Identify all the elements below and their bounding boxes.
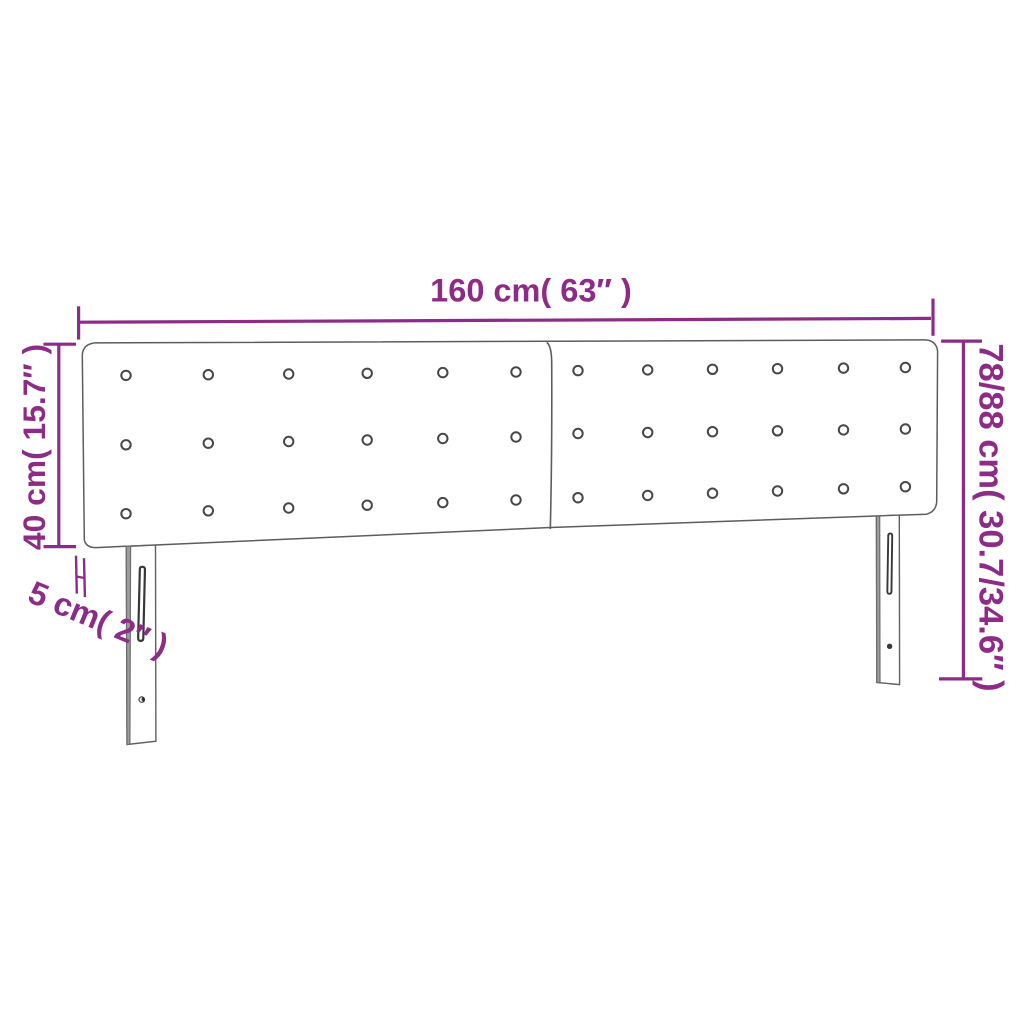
svg-text:40 cm( 15.7″ ): 40 cm( 15.7″ ) <box>16 344 52 550</box>
svg-text:160 cm( 63″ ): 160 cm( 63″ ) <box>430 273 632 309</box>
svg-text:78/88 cm( 30.7/34.6″ ): 78/88 cm( 30.7/34.6″ ) <box>972 343 1010 691</box>
